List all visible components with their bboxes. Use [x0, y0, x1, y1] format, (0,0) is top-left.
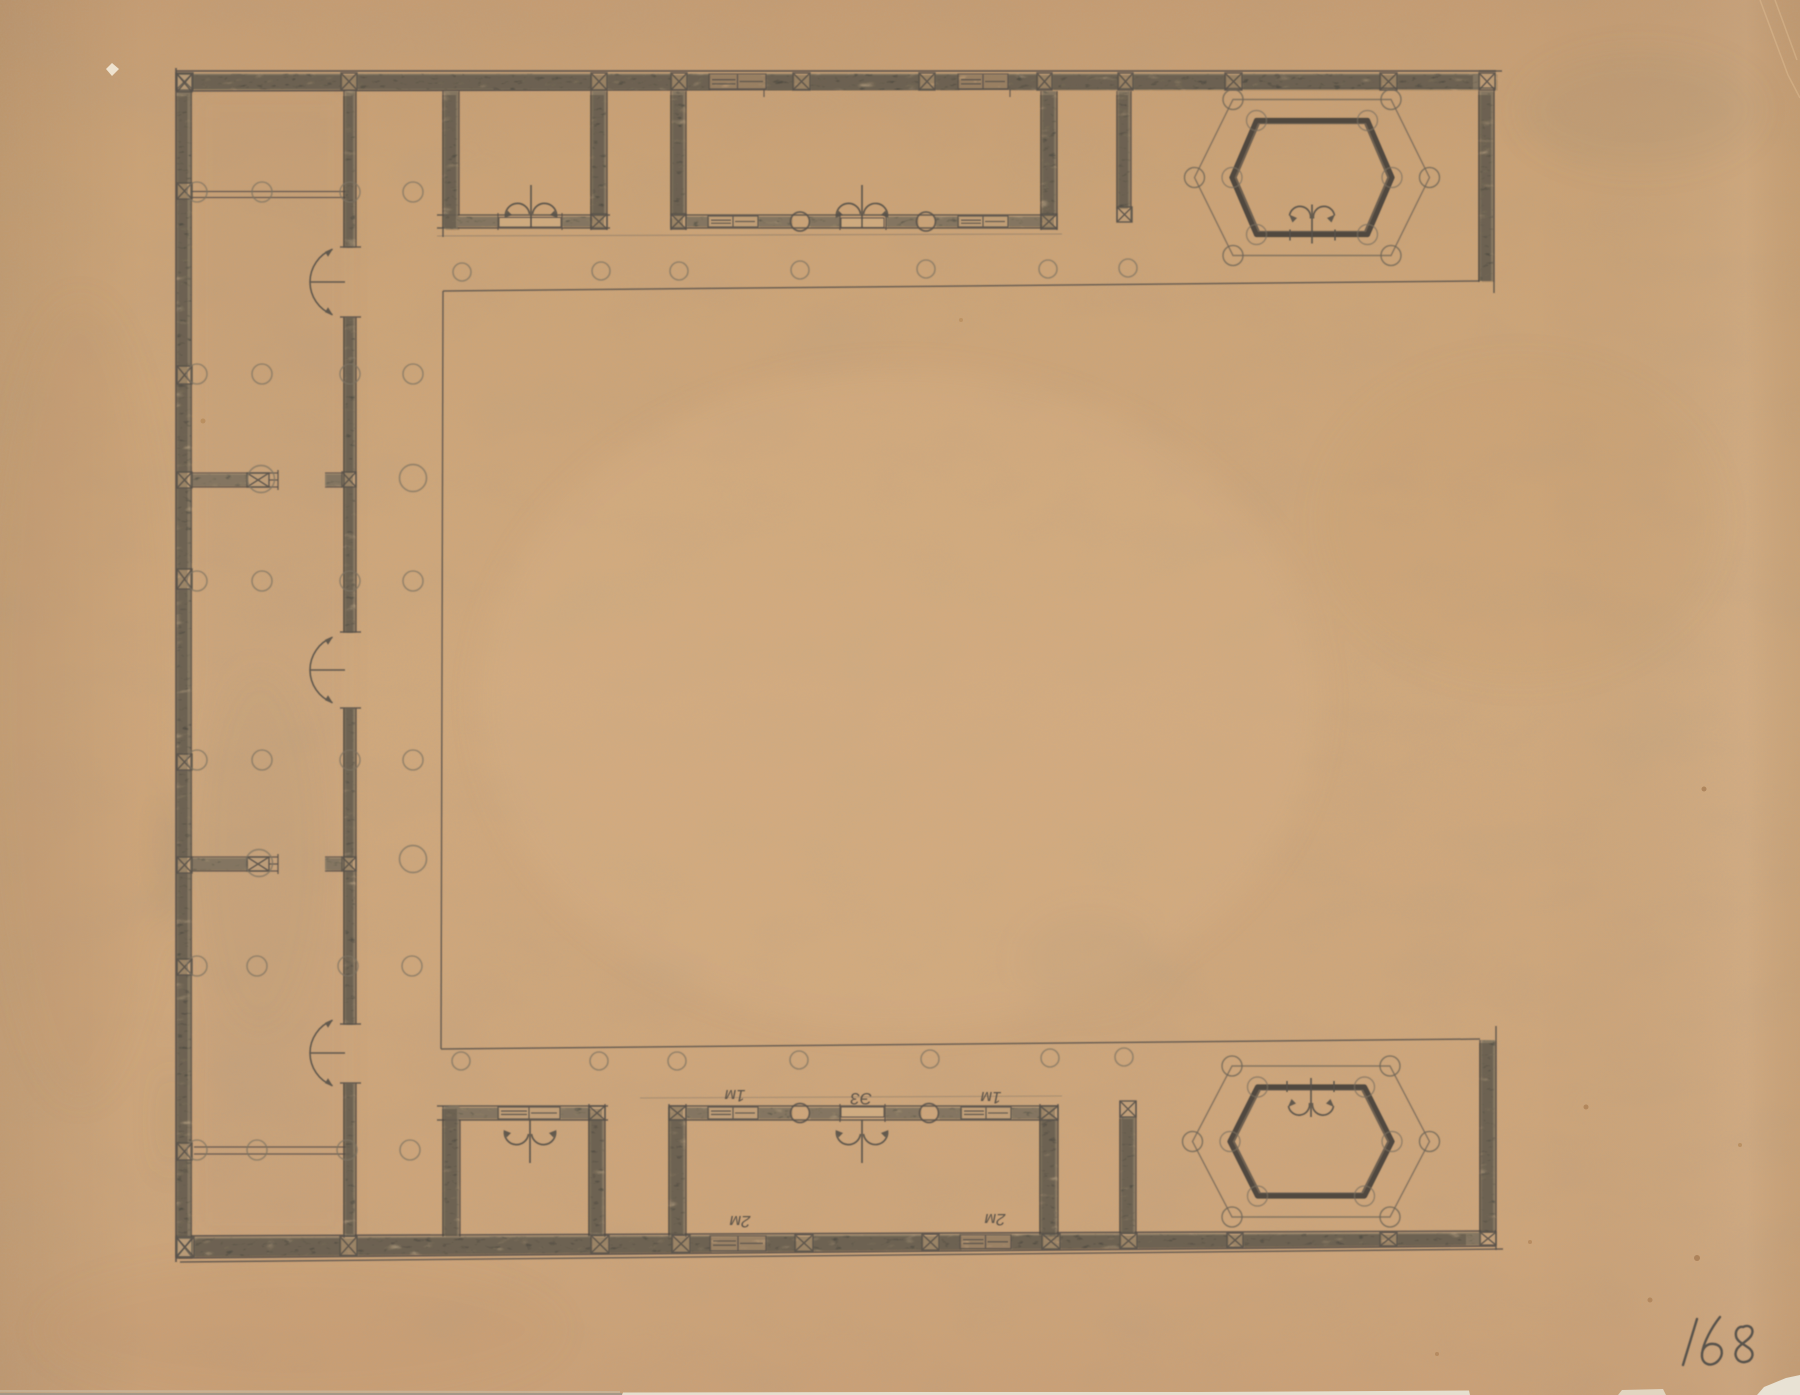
svg-text:1м: 1м — [980, 1088, 1001, 1107]
svg-text:Э3: Э3 — [850, 1089, 872, 1108]
svg-text:1м: 1м — [724, 1086, 745, 1105]
svg-text:2м: 2м — [729, 1212, 751, 1231]
svg-text:2м: 2м — [984, 1210, 1006, 1229]
